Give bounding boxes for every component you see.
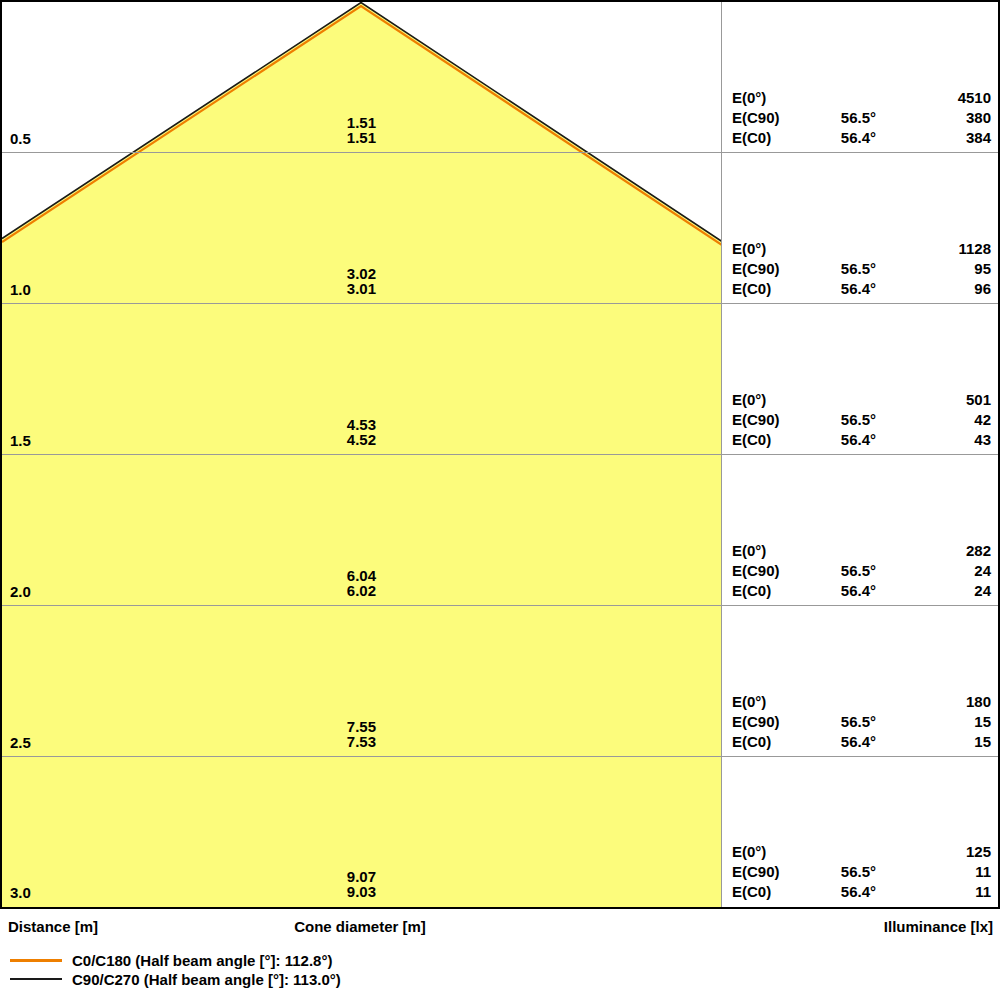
ec90-label: E(C90) xyxy=(732,561,788,581)
cone-diameter-values: 4.53 4.52 xyxy=(276,417,376,447)
ec90-label: E(C90) xyxy=(732,259,788,279)
illuminance-table: E(0°) 125 E(C90) 56.5° 11 E(C0) 56.4° 11 xyxy=(732,842,991,902)
cone-diameter-c0: 7.53 xyxy=(276,734,376,749)
illuminance-table: E(0°) 282 E(C90) 56.5° 24 E(C0) 56.4° 24 xyxy=(732,541,991,601)
e0-label: E(0°) xyxy=(732,239,788,259)
ec90-value: 42 xyxy=(876,410,991,430)
e0-angle xyxy=(788,88,876,108)
ec0-angle: 56.4° xyxy=(788,581,876,601)
e0-value: 180 xyxy=(876,692,991,712)
illuminance-axis-label: Illuminance [lx] xyxy=(884,918,993,936)
e0-value: 501 xyxy=(876,390,991,410)
ec0-value: 96 xyxy=(876,279,991,299)
ec90-angle: 56.5° xyxy=(788,410,876,430)
c90-c270-line-swatch xyxy=(10,978,62,980)
e0-label: E(0°) xyxy=(732,541,788,561)
ec90-angle: 56.5° xyxy=(788,108,876,128)
ec90-value: 15 xyxy=(876,712,991,732)
ec90-label: E(C90) xyxy=(732,862,788,882)
e0-value: 125 xyxy=(876,842,991,862)
ec90-angle: 56.5° xyxy=(788,862,876,882)
cone-diameter-c90: 3.02 xyxy=(276,266,376,281)
illuminance-table: E(0°) 501 E(C90) 56.5° 42 E(C0) 56.4° 43 xyxy=(732,390,991,450)
ec90-angle: 56.5° xyxy=(788,712,876,732)
ec90-angle: 56.5° xyxy=(788,259,876,279)
ec90-label: E(C90) xyxy=(732,108,788,128)
ec0-label: E(C0) xyxy=(732,279,788,299)
distance-label: 3.0 xyxy=(10,885,31,901)
e0-label: E(0°) xyxy=(732,692,788,712)
cone-diameter-c90: 7.55 xyxy=(276,719,376,734)
distance-row-1.0m: 1.0 3.02 3.01 E(0°) 1128 E(C90) 56.5° 95… xyxy=(2,153,998,304)
distance-row-2.5m: 2.5 7.55 7.53 E(0°) 180 E(C90) 56.5° 15 … xyxy=(2,606,998,757)
light-cone-diagram-page: 0.5 1.51 1.51 E(0°) 4510 E(C90) 56.5° 38… xyxy=(0,0,1000,1000)
ec0-label: E(C0) xyxy=(732,882,788,902)
e0-value: 1128 xyxy=(876,239,991,259)
distance-label: 2.0 xyxy=(10,584,31,600)
illuminance-table: E(0°) 180 E(C90) 56.5° 15 E(C0) 56.4° 15 xyxy=(732,692,991,752)
cone-diameter-c90: 4.53 xyxy=(276,417,376,432)
ec90-angle: 56.5° xyxy=(788,561,876,581)
ec0-value: 24 xyxy=(876,581,991,601)
ec90-label: E(C90) xyxy=(732,712,788,732)
e0-angle xyxy=(788,842,876,862)
ec0-angle: 56.4° xyxy=(788,279,876,299)
distance-row-0.5m: 0.5 1.51 1.51 E(0°) 4510 E(C90) 56.5° 38… xyxy=(2,2,998,153)
ec90-value: 24 xyxy=(876,561,991,581)
ec90-value: 95 xyxy=(876,259,991,279)
illuminance-table: E(0°) 1128 E(C90) 56.5° 95 E(C0) 56.4° 9… xyxy=(732,239,991,299)
cone-diameter-c90: 6.04 xyxy=(276,568,376,583)
e0-angle xyxy=(788,390,876,410)
legend-entry-c90-c270: C90/C270 (Half beam angle [°]: 113.0°) xyxy=(10,970,341,988)
c0-c180-line-swatch xyxy=(10,959,62,962)
cone-diameter-c0: 1.51 xyxy=(276,130,376,145)
e0-angle xyxy=(788,239,876,259)
distance-row-3.0m: 3.0 9.07 9.03 E(0°) 125 E(C90) 56.5° 11 … xyxy=(2,756,998,907)
cone-diameter-c0: 9.03 xyxy=(276,884,376,899)
c0-c180-legend-label: C0/C180 (Half beam angle [°]: 112.8°) xyxy=(72,952,332,969)
ec90-value: 11 xyxy=(876,862,991,882)
ec0-angle: 56.4° xyxy=(788,430,876,450)
e0-angle xyxy=(788,692,876,712)
distance-label: 1.0 xyxy=(10,282,31,298)
ec0-value: 43 xyxy=(876,430,991,450)
e0-value: 282 xyxy=(876,541,991,561)
ec90-label: E(C90) xyxy=(732,410,788,430)
distance-label: 1.5 xyxy=(10,433,31,449)
ec0-label: E(C0) xyxy=(732,732,788,752)
distance-row-1.5m: 1.5 4.53 4.52 E(0°) 501 E(C90) 56.5° 42 … xyxy=(2,304,998,455)
cone-diameter-c0: 4.52 xyxy=(276,432,376,447)
ec0-angle: 56.4° xyxy=(788,882,876,902)
legend-entry-c0-c180: C0/C180 (Half beam angle [°]: 112.8°) xyxy=(10,951,332,969)
e0-value: 4510 xyxy=(876,88,991,108)
cone-diameter-c0: 6.02 xyxy=(276,583,376,598)
e0-label: E(0°) xyxy=(732,390,788,410)
cone-diameter-c0: 3.01 xyxy=(276,281,376,296)
distance-row-2.0m: 2.0 6.04 6.02 E(0°) 282 E(C90) 56.5° 24 … xyxy=(2,455,998,606)
ec0-label: E(C0) xyxy=(732,430,788,450)
cone-diameter-c90: 9.07 xyxy=(276,869,376,884)
e0-label: E(0°) xyxy=(732,88,788,108)
ec0-value: 384 xyxy=(876,128,991,148)
cone-diameter-values: 9.07 9.03 xyxy=(276,869,376,899)
cone-diameter-c90: 1.51 xyxy=(276,115,376,130)
ec0-label: E(C0) xyxy=(732,128,788,148)
ec0-value: 11 xyxy=(876,882,991,902)
ec0-label: E(C0) xyxy=(732,581,788,601)
ec0-value: 15 xyxy=(876,732,991,752)
illuminance-table: E(0°) 4510 E(C90) 56.5° 380 E(C0) 56.4° … xyxy=(732,88,991,148)
ec90-value: 380 xyxy=(876,108,991,128)
ec0-angle: 56.4° xyxy=(788,128,876,148)
distance-label: 2.5 xyxy=(10,735,31,751)
e0-angle xyxy=(788,541,876,561)
e0-label: E(0°) xyxy=(732,842,788,862)
cone-diameter-values: 1.51 1.51 xyxy=(276,115,376,145)
cone-diameter-axis-label: Cone diameter [m] xyxy=(260,918,460,936)
c90-c270-legend-label: C90/C270 (Half beam angle [°]: 113.0°) xyxy=(72,971,341,988)
cone-diameter-values: 3.02 3.01 xyxy=(276,266,376,296)
distance-axis-label: Distance [m] xyxy=(8,918,98,936)
light-cone-chart: 0.5 1.51 1.51 E(0°) 4510 E(C90) 56.5° 38… xyxy=(0,0,1000,909)
cone-diameter-values: 7.55 7.53 xyxy=(276,719,376,749)
cone-diameter-values: 6.04 6.02 xyxy=(276,568,376,598)
distance-label: 0.5 xyxy=(10,131,31,147)
axis-labels-footer: Distance [m] Cone diameter [m] Illuminan… xyxy=(0,915,1000,937)
ec0-angle: 56.4° xyxy=(788,732,876,752)
